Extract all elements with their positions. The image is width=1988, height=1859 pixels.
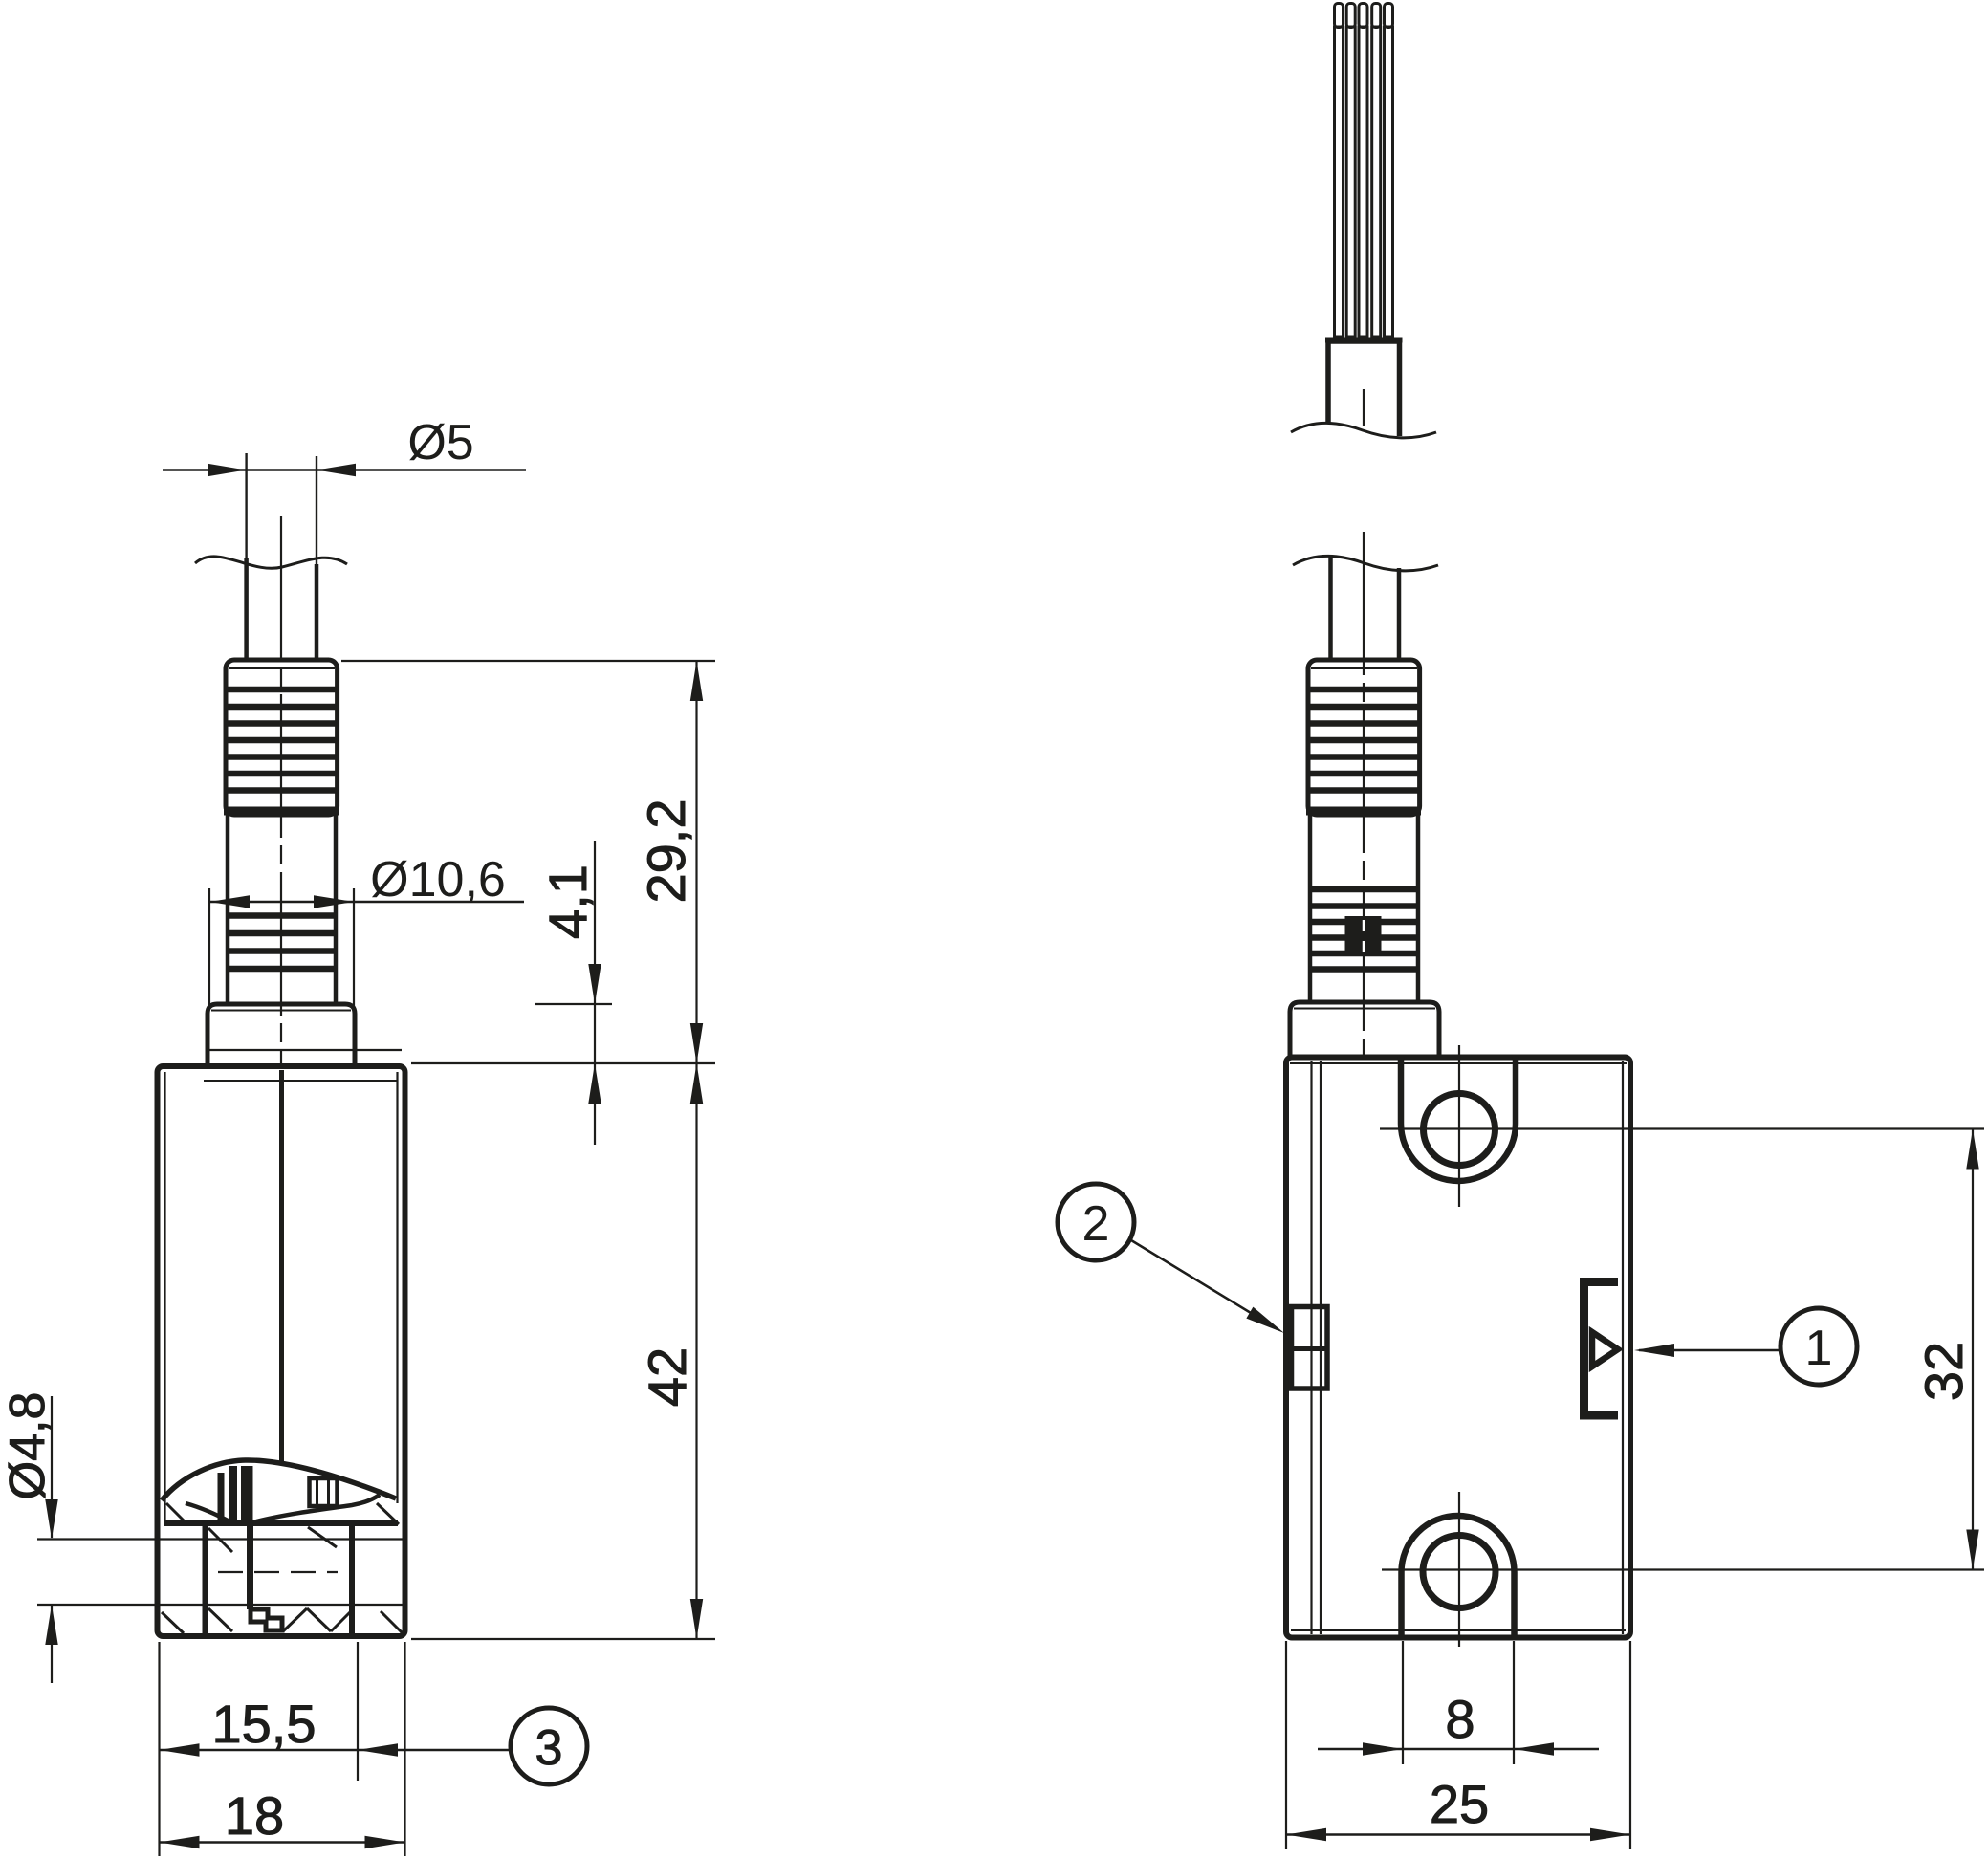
svg-text:25: 25: [1430, 1774, 1489, 1834]
svg-text:2: 2: [1082, 1196, 1110, 1252]
svg-text:29,2: 29,2: [636, 799, 696, 904]
svg-text:18: 18: [225, 1785, 284, 1846]
svg-text:4,1: 4,1: [537, 864, 598, 939]
svg-text:Ø5: Ø5: [407, 415, 473, 470]
svg-text:3: 3: [535, 1720, 563, 1776]
svg-text:Ø4,8: Ø4,8: [0, 1392, 55, 1500]
svg-text:15,5: 15,5: [212, 1694, 317, 1754]
svg-text:Ø10,6: Ø10,6: [370, 852, 506, 908]
svg-text:1: 1: [1805, 1321, 1833, 1376]
svg-text:32: 32: [1913, 1342, 1974, 1401]
svg-text:42: 42: [637, 1347, 697, 1407]
svg-text:8: 8: [1445, 1689, 1475, 1749]
